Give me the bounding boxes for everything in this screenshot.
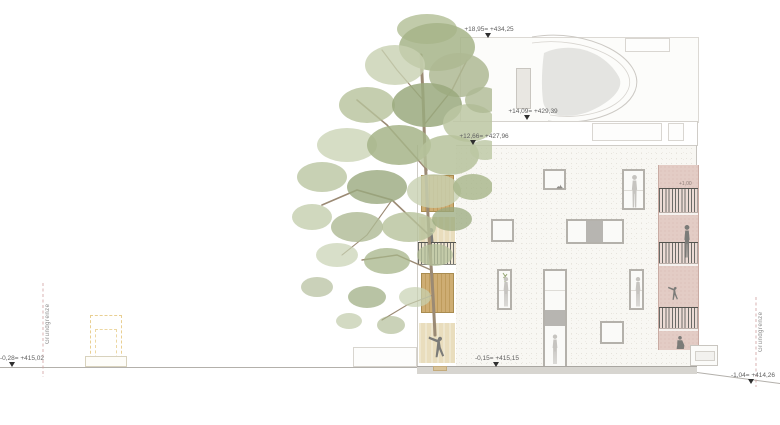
cellar-exit-box: [690, 345, 718, 366]
person-in-window: [501, 276, 511, 308]
person-in-window: [633, 276, 643, 308]
level-label-ground-left: -0,28= +415,02: [0, 355, 44, 362]
level-label-ground-building: -0,15= +415,15: [475, 355, 519, 362]
window-wide: [566, 219, 624, 244]
demolition-portal-base: [85, 356, 127, 367]
pink-loggia-column: +1,00: [658, 165, 699, 350]
level-marker-roof-terrace: [470, 140, 476, 145]
level-marker-top: [485, 33, 491, 38]
cat-silhouette: [556, 183, 564, 189]
terrace-box-2: [668, 123, 684, 141]
person-in-window: [550, 334, 560, 365]
kneeling-figure: [674, 336, 686, 350]
window-sq-ground: [600, 321, 624, 344]
balcony-mini-level-label: +1,00: [679, 181, 692, 187]
window-tall-upper: [622, 169, 645, 210]
elevation-drawing-canvas: +1,00: [0, 0, 780, 425]
pink-railing-upper: [659, 188, 698, 214]
level-label-roof-terrace: +12,66= +427,96: [459, 133, 508, 140]
person-in-window: [629, 175, 640, 208]
level-label-ground-right: -1,04= +414,26: [731, 372, 775, 379]
property-boundary-label-left: Grundgrenze: [45, 298, 51, 344]
tree-illustration: [287, 5, 492, 370]
terrace-box-1: [592, 123, 662, 141]
level-marker-ground-left: [9, 362, 15, 367]
level-label-attic: +14,09= +429,39: [508, 108, 557, 115]
level-label-top: +18,95= +434,25: [464, 26, 513, 33]
person-on-pink-balcony: [681, 225, 693, 258]
level-marker-ground-building: [493, 362, 499, 367]
child-on-pink-balcony: [668, 282, 682, 308]
window-stairwell-tall: [543, 269, 567, 368]
window-sq-mid: [491, 219, 514, 242]
window-tall-low-right: [629, 269, 644, 310]
level-marker-attic: [524, 115, 530, 120]
window-tall-low-left: [497, 269, 512, 310]
window-sq-upper: [543, 169, 566, 190]
property-boundary-label-right: Grundgrenze: [758, 306, 764, 352]
level-marker-ground-right: [748, 379, 754, 384]
pink-railing-lower: [659, 307, 698, 330]
